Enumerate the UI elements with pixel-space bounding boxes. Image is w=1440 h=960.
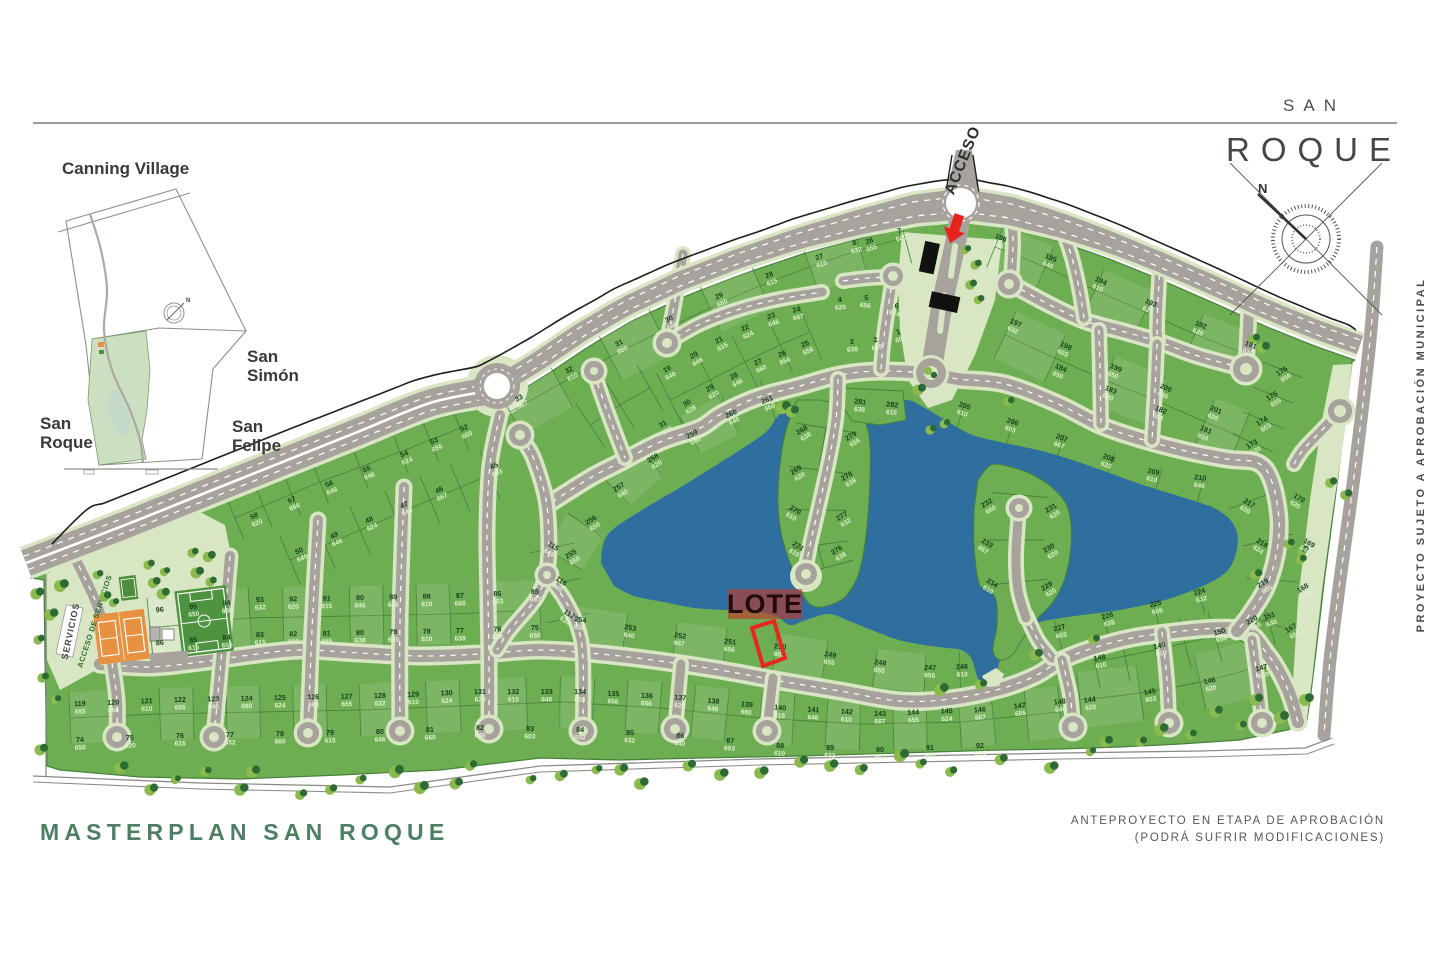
svg-text:650: 650 (388, 637, 399, 644)
svg-text:130: 130 (440, 688, 452, 697)
svg-text:656: 656 (860, 302, 872, 310)
svg-text:91: 91 (323, 594, 331, 603)
svg-text:127: 127 (341, 692, 353, 701)
svg-text:119: 119 (74, 699, 86, 708)
svg-text:80: 80 (356, 628, 364, 637)
svg-text:122: 122 (174, 695, 186, 704)
svg-text:646: 646 (1055, 706, 1067, 714)
svg-text:650: 650 (188, 611, 200, 619)
svg-text:660: 660 (425, 734, 437, 741)
svg-text:632: 632 (624, 737, 636, 745)
svg-text:121: 121 (140, 696, 152, 705)
svg-text:615: 615 (255, 639, 267, 647)
svg-text:82: 82 (289, 629, 297, 638)
svg-text:624: 624 (441, 698, 453, 705)
svg-text:124: 124 (241, 694, 253, 703)
svg-text:81: 81 (323, 629, 331, 638)
svg-text:638: 638 (355, 637, 366, 644)
svg-text:638: 638 (492, 634, 504, 641)
svg-text:638: 638 (854, 406, 866, 414)
svg-text:624: 624 (674, 702, 686, 710)
svg-text:615: 615 (886, 409, 898, 417)
svg-text:620: 620 (835, 304, 847, 312)
svg-text:91: 91 (926, 743, 934, 752)
svg-text:San: San (232, 417, 263, 436)
svg-text:ANTEPROYECTO EN ETAPA DE APROB: ANTEPROYECTO EN ETAPA DE APROBACIÓN (1071, 814, 1385, 827)
svg-text:148: 148 (1053, 696, 1066, 706)
svg-text:89: 89 (389, 592, 397, 601)
svg-text:93: 93 (256, 595, 265, 604)
svg-text:128: 128 (374, 691, 386, 700)
svg-text:610: 610 (421, 601, 432, 608)
svg-text:603: 603 (724, 745, 736, 753)
svg-text:75: 75 (126, 733, 134, 742)
svg-text:646: 646 (375, 736, 387, 743)
svg-text:144: 144 (907, 707, 919, 716)
svg-text:655: 655 (1015, 710, 1027, 718)
svg-text:86: 86 (493, 589, 501, 598)
svg-text:655: 655 (75, 708, 87, 715)
svg-text:624: 624 (975, 750, 987, 757)
svg-text:82: 82 (476, 723, 484, 732)
svg-text:667: 667 (874, 755, 885, 762)
svg-text:655: 655 (908, 717, 920, 724)
svg-text:N: N (1258, 181, 1267, 196)
svg-text:650: 650 (530, 632, 542, 639)
svg-text:615: 615 (508, 697, 519, 704)
svg-text:620: 620 (288, 604, 299, 611)
svg-text:660: 660 (925, 752, 937, 759)
svg-text:92: 92 (289, 594, 297, 603)
svg-text:610: 610 (141, 706, 153, 713)
svg-text:120: 120 (107, 697, 119, 706)
svg-text:667: 667 (874, 718, 885, 725)
svg-text:655: 655 (873, 667, 885, 675)
svg-text:74: 74 (76, 735, 84, 744)
svg-text:603: 603 (524, 733, 535, 740)
svg-text:640: 640 (388, 602, 399, 609)
svg-text:660: 660 (740, 709, 752, 717)
svg-text:638: 638 (847, 346, 859, 354)
svg-text:610: 610 (957, 671, 969, 678)
svg-text:79: 79 (389, 627, 397, 636)
svg-text:147: 147 (1013, 700, 1026, 710)
svg-text:137: 137 (674, 693, 687, 703)
svg-text:84: 84 (576, 725, 584, 734)
svg-text:Canning Village: Canning Village (62, 159, 189, 178)
svg-text:87: 87 (726, 736, 735, 746)
svg-text:615: 615 (321, 603, 332, 610)
svg-text:640: 640 (541, 697, 552, 704)
svg-text:646: 646 (707, 705, 719, 713)
svg-text:95: 95 (189, 601, 198, 611)
svg-text:Felipe: Felipe (232, 436, 281, 455)
svg-text:83: 83 (526, 724, 534, 733)
svg-text:87: 87 (456, 591, 464, 600)
svg-text:141: 141 (807, 705, 820, 715)
svg-text:615: 615 (175, 740, 187, 747)
svg-text:SAN: SAN (1283, 96, 1345, 115)
svg-text:131: 131 (474, 687, 486, 696)
svg-text:667: 667 (975, 714, 987, 722)
svg-text:146: 146 (974, 705, 987, 715)
svg-text:80: 80 (376, 727, 384, 736)
svg-text:610: 610 (408, 699, 420, 706)
svg-text:85: 85 (531, 587, 539, 596)
svg-text:Roque: Roque (40, 433, 93, 452)
svg-text:San: San (40, 414, 71, 433)
svg-text:88: 88 (776, 741, 785, 751)
svg-text:138: 138 (707, 696, 720, 706)
svg-text:135: 135 (607, 689, 620, 699)
svg-text:632: 632 (375, 700, 387, 707)
svg-text:136: 136 (641, 691, 654, 701)
svg-text:LOTE: LOTE (727, 589, 803, 619)
svg-text:89: 89 (826, 743, 834, 752)
svg-text:282: 282 (886, 399, 899, 409)
svg-text:78: 78 (276, 729, 284, 738)
svg-text:78: 78 (423, 627, 431, 636)
svg-text:125: 125 (274, 693, 286, 702)
svg-text:660: 660 (308, 702, 319, 709)
svg-text:638: 638 (155, 614, 167, 622)
svg-text:86: 86 (155, 638, 164, 648)
svg-text:PROYECTO SUJETO A APROBACIÓN M: PROYECTO SUJETO A APROBACIÓN MUNICIPAL (1414, 278, 1427, 633)
svg-text:667: 667 (530, 596, 542, 604)
svg-text:92: 92 (976, 741, 984, 750)
svg-text:San: San (247, 347, 278, 366)
svg-text:615: 615 (188, 644, 200, 652)
svg-text:660: 660 (288, 639, 299, 646)
svg-text:139: 139 (741, 699, 754, 709)
svg-text:632: 632 (824, 752, 836, 759)
svg-text:646: 646 (807, 714, 819, 722)
svg-text:75: 75 (531, 623, 539, 632)
svg-text:96: 96 (155, 605, 164, 615)
svg-text:646: 646 (1193, 482, 1205, 490)
svg-text:81: 81 (426, 725, 434, 734)
svg-text:MASTERPLAN SAN ROQUE: MASTERPLAN SAN ROQUE (40, 819, 449, 845)
svg-text:660: 660 (455, 600, 467, 607)
svg-text:ROQUE: ROQUE (1226, 131, 1402, 168)
svg-text:624: 624 (275, 702, 286, 709)
svg-text:632: 632 (255, 604, 267, 612)
svg-text:133: 133 (541, 687, 553, 696)
svg-text:77: 77 (226, 730, 234, 739)
svg-text:603: 603 (574, 696, 586, 703)
svg-text:281: 281 (854, 396, 867, 406)
svg-text:129: 129 (407, 689, 419, 698)
svg-text:86: 86 (676, 731, 685, 741)
svg-text:4: 4 (837, 295, 842, 304)
svg-text:620: 620 (1085, 704, 1097, 712)
svg-text:660: 660 (241, 703, 252, 710)
svg-text:88: 88 (423, 592, 431, 601)
svg-text:126: 126 (307, 692, 319, 701)
svg-text:(PODRÁ SUFRIR MODIFICACIONES): (PODRÁ SUFRIR MODIFICACIONES) (1135, 831, 1385, 844)
svg-text:650: 650 (75, 744, 87, 751)
svg-text:620: 620 (125, 742, 137, 749)
svg-text:640: 640 (674, 740, 686, 748)
svg-text:646: 646 (355, 602, 366, 609)
svg-text:143: 143 (874, 709, 886, 718)
svg-text:603: 603 (492, 598, 504, 606)
svg-text:3: 3 (849, 337, 854, 346)
svg-text:85: 85 (189, 635, 198, 645)
svg-text:246: 246 (956, 662, 968, 671)
svg-text:615: 615 (325, 737, 336, 744)
svg-text:134: 134 (574, 687, 586, 696)
svg-text:646: 646 (208, 704, 219, 711)
svg-text:132: 132 (507, 687, 519, 696)
svg-text:610: 610 (841, 716, 853, 724)
svg-text:660: 660 (275, 738, 286, 745)
svg-text:656: 656 (641, 700, 653, 708)
svg-text:76: 76 (176, 731, 184, 740)
svg-text:142: 142 (841, 707, 854, 717)
svg-text:83: 83 (256, 630, 264, 639)
svg-text:90: 90 (876, 745, 884, 754)
svg-text:79: 79 (326, 728, 334, 737)
svg-text:655: 655 (321, 638, 332, 645)
svg-text:140: 140 (774, 703, 787, 713)
svg-text:624: 624 (941, 716, 953, 723)
svg-text:610: 610 (421, 636, 432, 643)
svg-text:638: 638 (221, 607, 233, 615)
svg-text:610: 610 (155, 647, 167, 655)
svg-text:145: 145 (940, 706, 952, 715)
svg-text:615: 615 (774, 712, 786, 720)
svg-text:638: 638 (475, 696, 486, 703)
svg-text:76: 76 (493, 624, 501, 633)
svg-text:655: 655 (221, 642, 233, 650)
svg-text:94: 94 (222, 598, 231, 608)
svg-text:Simón: Simón (247, 366, 299, 385)
svg-text:650: 650 (574, 734, 586, 741)
svg-text:247: 247 (924, 663, 936, 673)
svg-text:655: 655 (175, 704, 187, 711)
svg-text:85: 85 (626, 728, 635, 737)
svg-text:656: 656 (108, 707, 120, 714)
svg-text:656: 656 (607, 698, 619, 706)
svg-text:646: 646 (475, 732, 486, 739)
svg-text:84: 84 (222, 632, 231, 642)
svg-text:123: 123 (207, 694, 219, 703)
svg-text:610: 610 (774, 750, 786, 758)
svg-text:N: N (186, 298, 190, 304)
svg-text:655: 655 (341, 701, 352, 708)
svg-text:656: 656 (723, 646, 735, 654)
svg-text:632: 632 (225, 739, 236, 746)
svg-text:77: 77 (456, 626, 464, 635)
svg-text:90: 90 (356, 593, 364, 602)
svg-text:655: 655 (924, 672, 936, 680)
svg-text:638: 638 (455, 635, 467, 642)
